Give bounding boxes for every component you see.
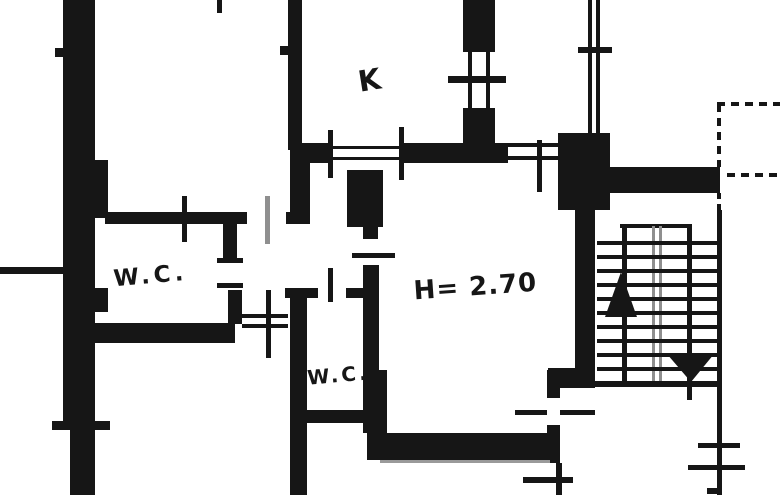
door-tick bbox=[266, 290, 271, 358]
label-wc-1: W.C. bbox=[112, 260, 188, 292]
door-tick bbox=[537, 140, 542, 192]
window-line bbox=[596, 0, 600, 135]
door-tick bbox=[280, 46, 288, 55]
wall bbox=[105, 212, 247, 224]
wall bbox=[223, 224, 237, 262]
wall bbox=[575, 195, 595, 388]
door-tick bbox=[515, 410, 547, 415]
stair-bottom-line bbox=[593, 381, 722, 387]
door-threshold-line bbox=[333, 157, 402, 160]
door-tick bbox=[217, 258, 243, 263]
wall bbox=[463, 108, 495, 163]
label-height: H= 2.70 bbox=[413, 268, 539, 307]
door-leaf-line bbox=[265, 196, 270, 244]
door-threshold-line bbox=[242, 324, 288, 328]
stair-tread bbox=[597, 339, 718, 343]
door-threshold-line bbox=[508, 143, 562, 147]
stair-tread bbox=[597, 269, 718, 273]
wall bbox=[285, 288, 318, 298]
wall bbox=[63, 218, 95, 326]
wall bbox=[295, 143, 333, 163]
door-threshold-line bbox=[242, 314, 288, 318]
door-threshold-line bbox=[508, 156, 562, 160]
label-wc-2: W.C. bbox=[306, 360, 370, 389]
door-tick bbox=[55, 48, 64, 57]
door-threshold-line bbox=[333, 146, 402, 149]
wall bbox=[63, 0, 95, 160]
stair-tread bbox=[597, 283, 718, 287]
wall-shadow-line bbox=[380, 460, 550, 463]
door-tick bbox=[578, 47, 612, 53]
wall bbox=[63, 326, 95, 430]
wall bbox=[288, 0, 302, 150]
stair-landing-line bbox=[620, 224, 692, 228]
wall bbox=[363, 227, 378, 239]
wall bbox=[228, 290, 242, 324]
door-tick bbox=[52, 421, 110, 430]
stair-tread bbox=[597, 241, 718, 245]
stair-rail-line bbox=[659, 226, 662, 381]
door-tick bbox=[182, 196, 187, 242]
stair-tread bbox=[597, 255, 718, 259]
stair-arrow-up bbox=[605, 272, 637, 317]
door-tick bbox=[523, 477, 573, 483]
stair-tread bbox=[597, 325, 718, 329]
door-tick bbox=[328, 130, 333, 178]
wall bbox=[95, 288, 108, 312]
door-tick bbox=[448, 76, 506, 83]
wall bbox=[290, 290, 307, 495]
wall bbox=[547, 370, 560, 398]
wall bbox=[95, 323, 235, 343]
wall bbox=[463, 0, 495, 52]
wall-stub bbox=[217, 0, 222, 13]
wall bbox=[367, 433, 557, 460]
door-tick bbox=[560, 410, 595, 415]
wall bbox=[286, 212, 310, 224]
wall bbox=[603, 167, 720, 193]
door-tick bbox=[352, 253, 395, 258]
wall bbox=[63, 160, 108, 218]
door-tick bbox=[328, 268, 333, 302]
floor-plan-svg: KW.C.W.C.H= 2.70 bbox=[0, 0, 780, 495]
door-tick bbox=[688, 465, 745, 470]
wall bbox=[300, 410, 367, 423]
door-tick bbox=[698, 443, 740, 448]
floor-plan: KW.C.W.C.H= 2.70 bbox=[0, 0, 780, 495]
door-tick bbox=[707, 488, 720, 494]
door-tick bbox=[399, 127, 404, 180]
window-line bbox=[588, 0, 592, 135]
door-tick bbox=[217, 283, 243, 288]
wall bbox=[70, 430, 95, 495]
label-kitchen: K bbox=[356, 61, 385, 98]
wall bbox=[0, 267, 63, 274]
wall-thin bbox=[717, 210, 722, 495]
stair-rail-line bbox=[652, 226, 655, 381]
wall bbox=[347, 170, 383, 227]
